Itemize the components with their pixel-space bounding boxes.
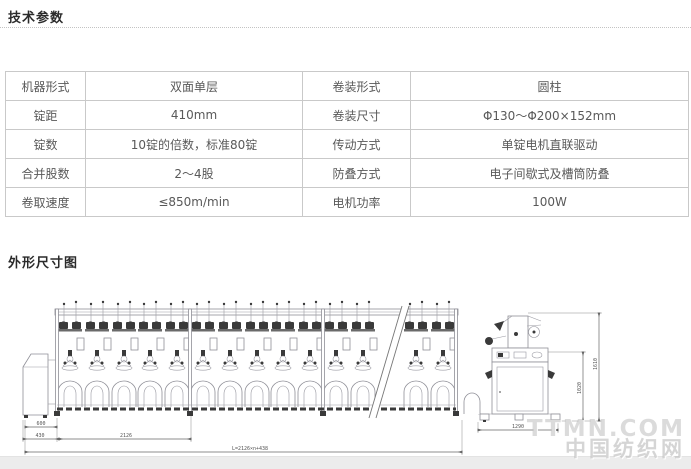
spec-value: 电子间歇式及槽筒防叠 [411,159,689,188]
product-spec-page: 技术参数 机器形式 双面单层 卷装形式 圆柱 锭距 410mm 卷装尺寸 Φ13… [0,0,691,469]
spec-value: 圆柱 [411,72,689,101]
end-pedestal [23,354,56,418]
dim-label-overall-length: L=2126×n+438 [232,446,268,452]
section-title-tech-params: 技术参数 [0,0,691,27]
dim-label-430: 430 [35,433,44,439]
table-row: 合并股数 2～4股 防叠方式 电子间歇式及槽筒防叠 [6,159,689,188]
spec-table: 机器形式 双面单层 卷装形式 圆柱 锭距 410mm 卷装尺寸 Φ130～Φ20… [5,71,689,217]
spec-label: 锭数 [6,130,86,159]
dim-label-600: 600 [36,421,45,427]
table-row: 卷取速度 ≤850m/min 电机功率 100W [6,188,689,217]
spec-label: 防叠方式 [303,159,411,188]
spec-value: 410mm [86,101,303,130]
spec-label: 电机功率 [303,188,411,217]
dotted-separator [0,27,691,28]
table-row: 锭距 410mm 卷装尺寸 Φ130～Φ200×152mm [6,101,689,130]
section-title-dimensions: 外形尺寸图 [0,245,691,272]
dim-label-1290: 1290 [512,424,524,430]
front-view [54,301,459,418]
spec-label: 传动方式 [303,130,411,159]
dim-label-height-inner: 1020 [577,382,583,394]
spec-label: 合并股数 [6,159,86,188]
spec-label: 机器形式 [6,72,86,101]
spec-label: 卷取速度 [6,188,86,217]
spec-value: 单锭电机直联驱动 [411,130,689,159]
spec-label: 卷装尺寸 [303,101,411,130]
spec-value: ≤850m/min [86,188,303,217]
spec-value: 10锭的倍数，标准80锭 [86,130,303,159]
spec-label: 卷装形式 [303,72,411,101]
table-row: 机器形式 双面单层 卷装形式 圆柱 [6,72,689,101]
dimension-drawing: 600 430 2126 L=2126×n+438 1290 1020 1610 [0,285,691,469]
dim-label-2126: 2126 [120,433,132,439]
dim-label-height-outer: 1610 [593,358,599,370]
spec-value: 双面单层 [86,72,303,101]
spec-label: 锭距 [6,101,86,130]
spec-value: Φ130～Φ200×152mm [411,101,689,130]
break-line [369,306,409,418]
side-view [464,316,560,422]
table-row: 锭数 10锭的倍数，标准80锭 传动方式 单锭电机直联驱动 [6,130,689,159]
spec-value: 2～4股 [86,159,303,188]
spec-value: 100W [411,188,689,217]
